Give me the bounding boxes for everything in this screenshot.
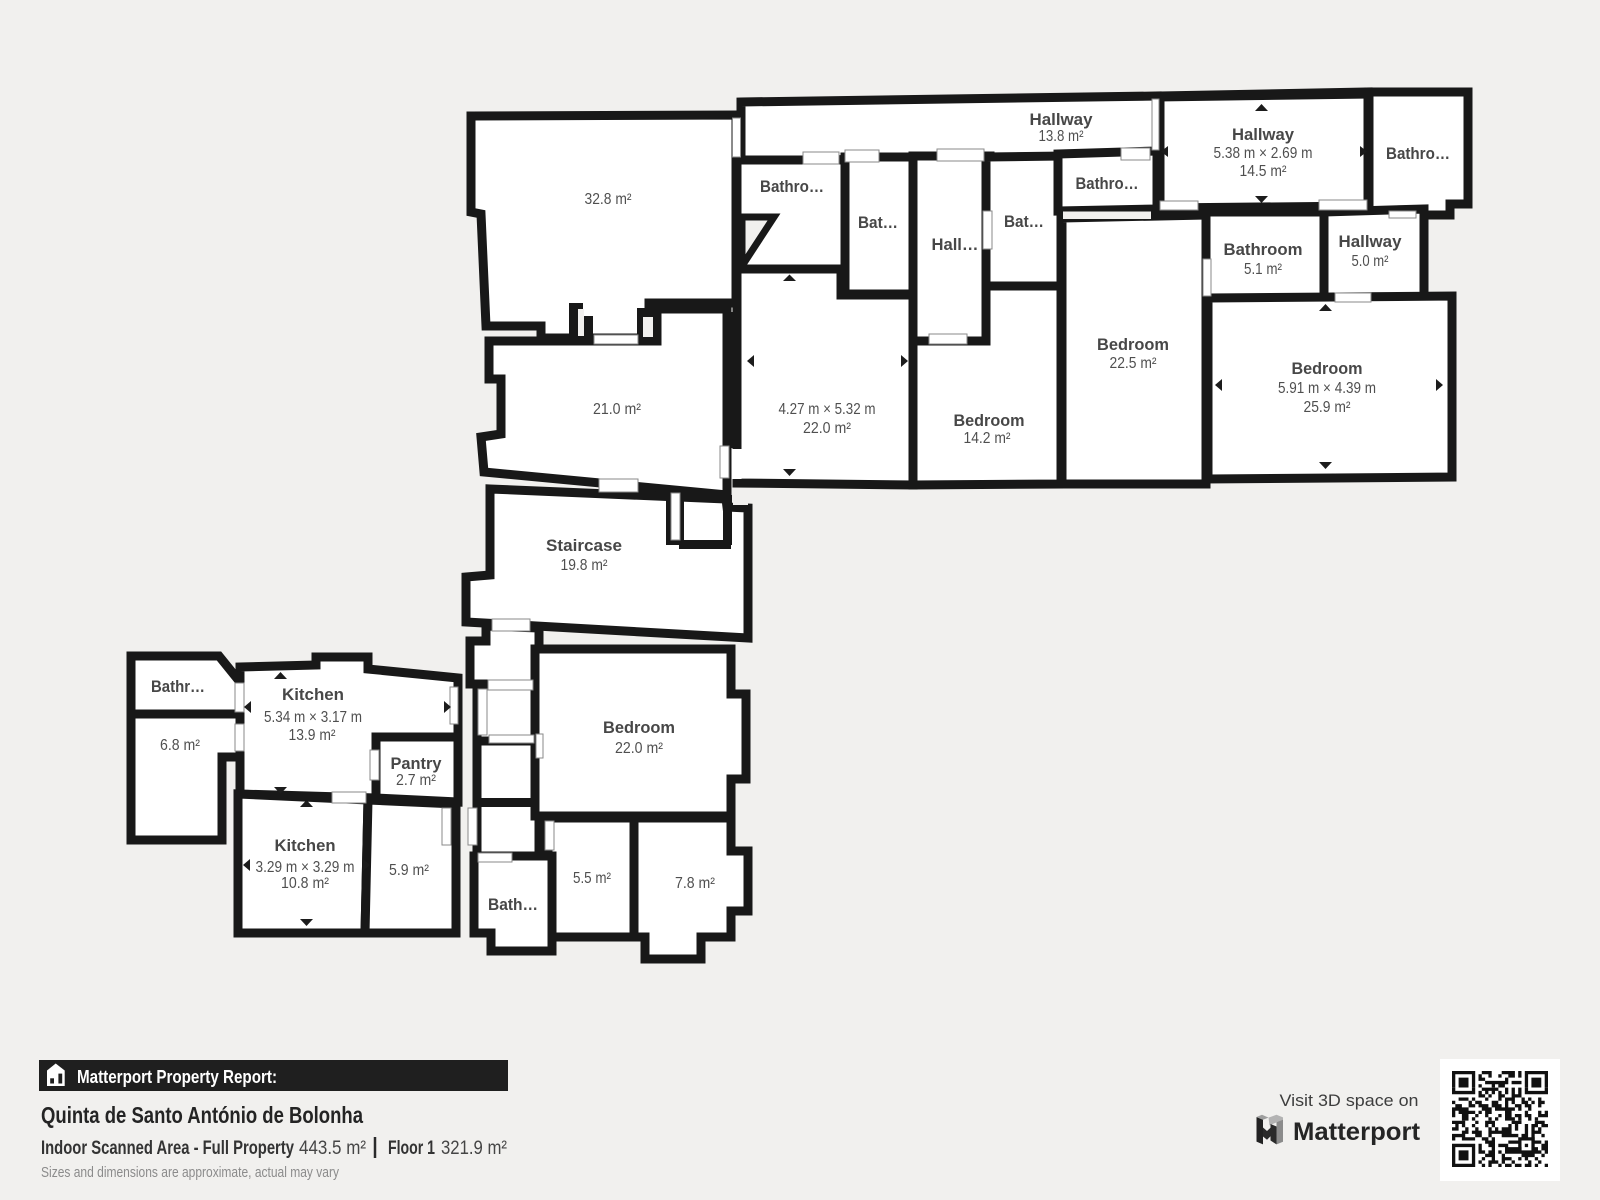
svg-text:Bat…: Bat… bbox=[1004, 212, 1044, 231]
svg-text:5.5 m²: 5.5 m² bbox=[573, 870, 611, 887]
svg-text:Kitchen: Kitchen bbox=[275, 836, 336, 855]
svg-text:Bedroom: Bedroom bbox=[603, 718, 675, 737]
svg-text:Bedroom: Bedroom bbox=[1097, 335, 1169, 354]
svg-text:5.9 m²: 5.9 m² bbox=[389, 862, 429, 879]
svg-text:Bat…: Bat… bbox=[858, 213, 898, 232]
svg-text:5.91 m × 4.39 m: 5.91 m × 4.39 m bbox=[1278, 380, 1376, 397]
svg-text:Sizes and dimensions are appro: Sizes and dimensions are approximate, ac… bbox=[41, 1165, 340, 1181]
svg-text:13.9 m²: 13.9 m² bbox=[289, 727, 336, 744]
svg-text:Bathro…: Bathro… bbox=[760, 177, 824, 196]
svg-text:Matterport: Matterport bbox=[1293, 1118, 1421, 1146]
svg-text:19.8 m²: 19.8 m² bbox=[561, 557, 608, 574]
svg-text:Indoor Scanned Area - Full Pro: Indoor Scanned Area - Full Property bbox=[41, 1138, 294, 1159]
svg-text:Bathro…: Bathro… bbox=[1076, 174, 1139, 193]
svg-text:21.0 m²: 21.0 m² bbox=[593, 401, 641, 418]
svg-text:2.7 m²: 2.7 m² bbox=[396, 772, 436, 789]
svg-text:5.38 m × 2.69 m: 5.38 m × 2.69 m bbox=[1214, 145, 1313, 162]
svg-text:22.0 m²: 22.0 m² bbox=[803, 420, 851, 437]
svg-text:Staircase: Staircase bbox=[546, 536, 622, 555]
svg-text:22.0 m²: 22.0 m² bbox=[615, 740, 663, 757]
svg-text:443.5 m²: 443.5 m² bbox=[299, 1138, 366, 1159]
svg-text:7.8 m²: 7.8 m² bbox=[675, 875, 715, 892]
svg-text:Hallway: Hallway bbox=[1030, 110, 1094, 129]
svg-text:13.8 m²: 13.8 m² bbox=[1039, 128, 1084, 145]
svg-text:Floor 1: Floor 1 bbox=[388, 1138, 435, 1159]
svg-text:14.5 m²: 14.5 m² bbox=[1240, 163, 1287, 180]
svg-text:Bathroom: Bathroom bbox=[1224, 240, 1303, 259]
svg-text:32.8 m²: 32.8 m² bbox=[585, 191, 632, 208]
svg-text:14.2 m²: 14.2 m² bbox=[964, 430, 1011, 447]
svg-text:25.9 m²: 25.9 m² bbox=[1304, 399, 1351, 416]
svg-text:Pantry: Pantry bbox=[391, 754, 443, 773]
svg-text:Matterport Property Report:: Matterport Property Report: bbox=[77, 1067, 277, 1087]
svg-text:22.5 m²: 22.5 m² bbox=[1110, 355, 1157, 372]
svg-text:321.9 m²: 321.9 m² bbox=[441, 1138, 507, 1159]
svg-text:Hallway: Hallway bbox=[1339, 232, 1403, 251]
svg-text:Bath…: Bath… bbox=[488, 895, 538, 914]
svg-text:Visit 3D space on: Visit 3D space on bbox=[1280, 1091, 1419, 1110]
svg-text:5.1 m²: 5.1 m² bbox=[1244, 261, 1282, 278]
svg-text:Bathro…: Bathro… bbox=[1386, 144, 1450, 163]
svg-text:10.8 m²: 10.8 m² bbox=[281, 875, 329, 892]
svg-text:Hall…: Hall… bbox=[932, 235, 979, 254]
svg-text:4.27 m × 5.32 m: 4.27 m × 5.32 m bbox=[779, 401, 876, 418]
svg-text:Bedroom: Bedroom bbox=[1292, 359, 1363, 378]
svg-text:Bedroom: Bedroom bbox=[954, 411, 1025, 430]
svg-text:Kitchen: Kitchen bbox=[282, 685, 344, 704]
svg-text:Bathr…: Bathr… bbox=[151, 677, 205, 696]
svg-text:Quinta de Santo António de Bol: Quinta de Santo António de Bolonha bbox=[41, 1102, 364, 1128]
svg-text:Hallway: Hallway bbox=[1232, 125, 1295, 144]
svg-text:6.8 m²: 6.8 m² bbox=[160, 737, 200, 754]
svg-text:5.34 m × 3.17 m: 5.34 m × 3.17 m bbox=[264, 709, 362, 726]
svg-text:3.29 m × 3.29 m: 3.29 m × 3.29 m bbox=[256, 859, 355, 876]
svg-text:5.0 m²: 5.0 m² bbox=[1352, 253, 1389, 270]
